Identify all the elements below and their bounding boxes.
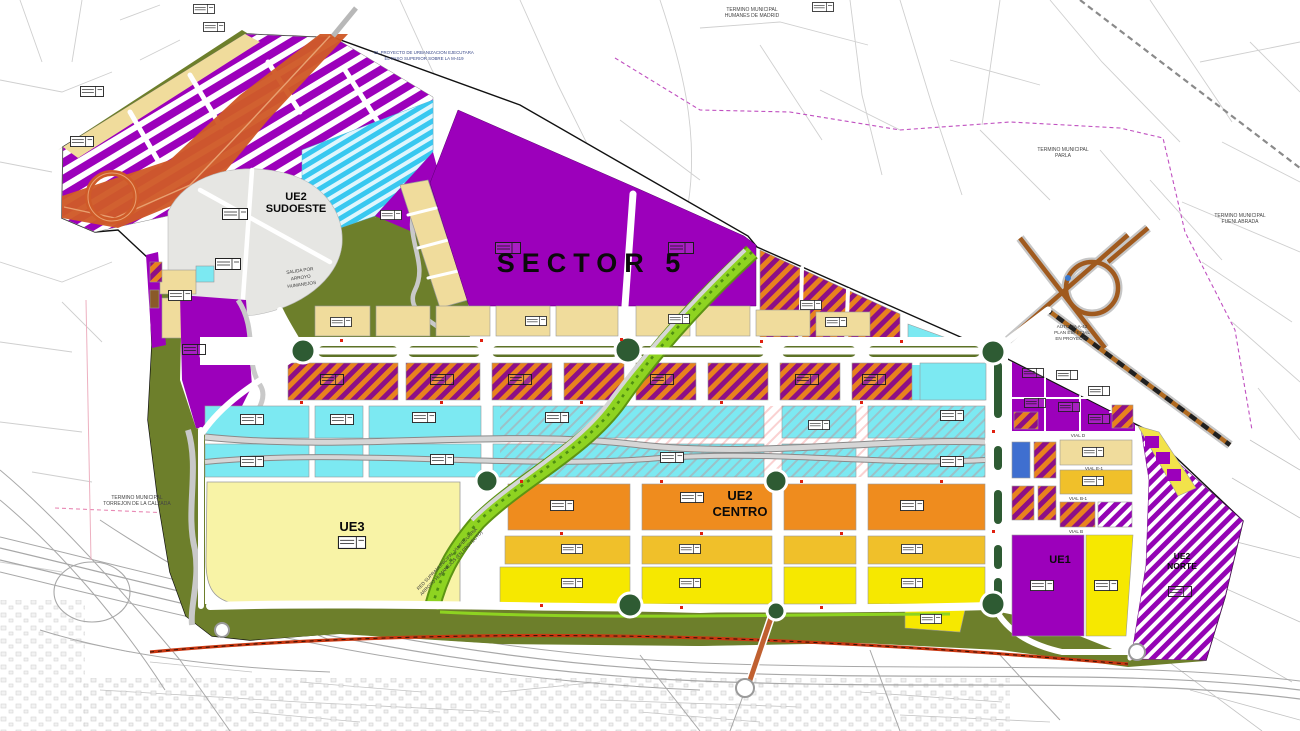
svg-text:VIAL B-1: VIAL B-1 (1069, 496, 1088, 501)
svg-text:VIAL B: VIAL B (1069, 529, 1083, 534)
map-canvas: SECTOR 5 UE2 SUDOESTE UE3 UE2 CENTRO UE1… (0, 0, 1300, 731)
svg-text:PARLA: PARLA (1055, 153, 1072, 159)
railway-outside (1080, 0, 1300, 168)
tan-parcel-row (315, 306, 870, 336)
sector-5-area (58, 2, 1243, 697)
svg-text:FUENLABRADA: FUENLABRADA (1222, 219, 1260, 225)
label-tm-parla: TERMINO MUNICIPAL PARLA (1037, 147, 1089, 159)
svg-text:VIAL E-1: VIAL E-1 (1085, 466, 1104, 471)
svg-text:AUTOVIA A-42: AUTOVIA A-42 (1057, 324, 1088, 329)
label-ue2-sudoeste: UE2 (285, 191, 306, 203)
svg-text:VIAL D: VIAL D (1071, 433, 1086, 438)
interchange-marker (1065, 275, 1071, 281)
blue-parcel (1012, 442, 1030, 478)
label-tm-fuenlabrada: TERMINO MUNICIPAL FUENLABRADA (1214, 213, 1266, 225)
label-project-note: EL PROYECTO DE URBANIZACION EJECUTARA EL… (374, 50, 474, 61)
svg-text:EN PROYECTO: EN PROYECTO (1055, 336, 1089, 341)
label-ue2-norte: UE2 (1174, 551, 1191, 561)
svg-text:EL PASO SUPERIOR SOBRE LA M-41: EL PASO SUPERIOR SOBRE LA M-419 (384, 56, 464, 61)
svg-text:PLAN ESPECIAL: PLAN ESPECIAL (1054, 330, 1090, 335)
svg-text:EL PROYECTO DE URBANIZACION EJ: EL PROYECTO DE URBANIZACION EJECUTARA (374, 50, 474, 55)
label-ue3: UE3 (339, 519, 364, 534)
label-sector5: SECTOR 5 (497, 248, 688, 278)
region-ue2-norte (1131, 429, 1243, 660)
planning-map: SECTOR 5 UE2 SUDOESTE UE3 UE2 CENTRO UE1… (0, 0, 1300, 731)
label-tm-torrejon: TERMINO MUNICIPAL TORREJON DE LA CALZADA (103, 495, 171, 507)
svg-text:HUMANES DE MADRID: HUMANES DE MADRID (725, 13, 780, 19)
svg-text:NORTE: NORTE (1167, 561, 1197, 571)
svg-text:CENTRO: CENTRO (713, 504, 768, 519)
label-tm-humanes: TERMINO MUNICIPAL HUMANES DE MADRID (725, 7, 780, 19)
label-ue1: UE1 (1049, 554, 1070, 566)
label-ue2-centro: UE2 (727, 488, 752, 503)
label-autovia: AUTOVIA A-42 PLAN ESPECIAL EN PROYECTO (1054, 324, 1090, 341)
svg-text:SUDOESTE: SUDOESTE (266, 203, 327, 215)
town-fabric-left (0, 600, 85, 731)
cyan-block-ne (920, 363, 986, 400)
town-fabric (80, 678, 1010, 731)
svg-text:TORREJON DE LA CALZADA: TORREJON DE LA CALZADA (103, 501, 171, 507)
